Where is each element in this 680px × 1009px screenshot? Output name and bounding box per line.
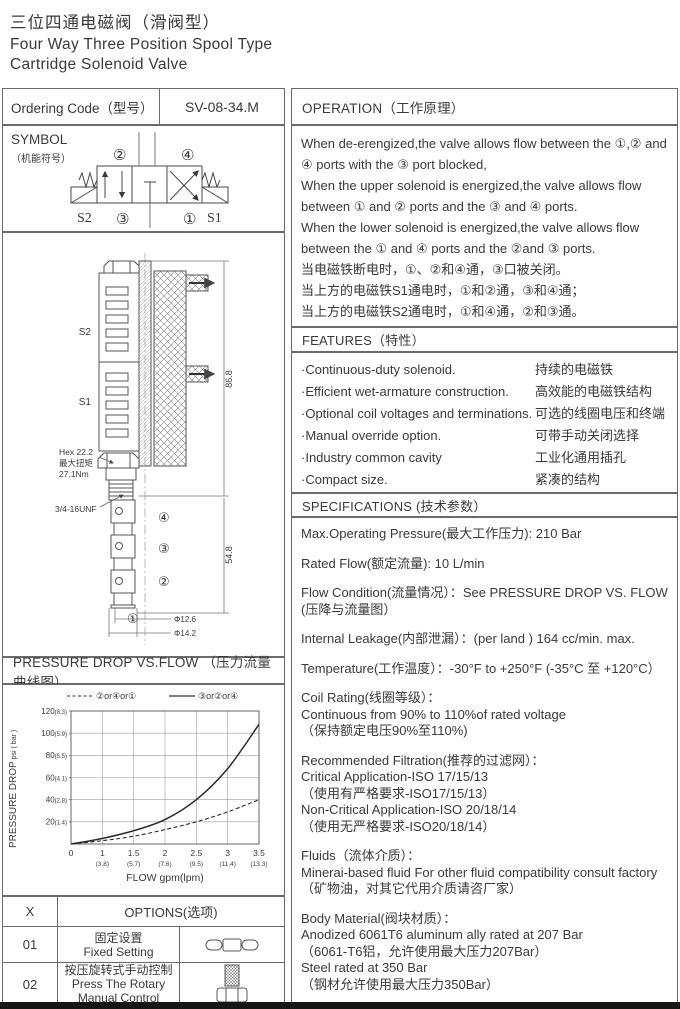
pressure-drop-chart-section: 20(1.4)40(2.8)60(4.1)80(5.5)100(5.9)120(… [2,684,285,896]
operation-line: When de-erengized,the valve allows flow … [301,133,669,175]
symbol-section: SYMBOL （机能符号） [2,125,285,232]
valve-symbol-schematic: ② ④ ③ ① S2 S1 [3,126,284,231]
coil-s1-label: S1 [79,397,92,408]
option-02-label-zh: 按压旋转式手动控制 [64,963,172,977]
svg-text:20(1.4): 20(1.4) [46,818,67,827]
svg-text:1.5: 1.5 [128,848,140,858]
spec-line: Recommended Filtration(推荐的过滤网）： [301,753,669,770]
datasheet-page: 三位四通电磁阀（滑阀型） Four Way Three Position Spo… [0,0,680,1009]
feature-en: ·Compact size. [301,469,535,491]
spec-line: （6061-T6铝，允许使用最大压力207Bar） [301,944,669,961]
svg-text:3: 3 [225,848,230,858]
symbol-port-3: ③ [116,211,129,228]
dia-14-2: Φ14.2 [174,629,197,638]
feature-row: ·Manual override option.可带手动关闭选择 [301,425,671,447]
options-table: X OPTIONS(选项) 01 固定设置 Fixed Setting 02 按… [2,896,285,1003]
feature-row: ·Efficient wet-armature construction.高效能… [301,381,671,403]
spec-line: Fluids（流体介质）： [301,848,669,865]
features-heading: FEATURES（特性） [291,327,678,352]
spec-line: Critical Application-ISO 17/15/13 [301,769,669,786]
option-02-code: 02 [3,963,58,1005]
spec-block: Fluids（流体介质）：Minerai-based fluid For oth… [301,848,669,898]
spec-line: Internal Leakage(内部泄漏）：(per land ) 164 c… [301,631,669,648]
feature-en: ·Efficient wet-armature construction. [301,381,535,403]
svg-text:60(4.1): 60(4.1) [46,773,67,782]
chart-legend: ②or④or①③or②or④ [67,691,238,701]
feature-zh: 工业化通用插孔 [535,447,671,469]
spec-line: Body Material(阀块材质）： [301,911,669,928]
chart-x-label: FLOW gpm(lpm) [126,872,204,884]
symbol-port-1: ① [183,211,196,228]
spec-line: (压降与流量图） [301,602,669,619]
svg-text:(9.5): (9.5) [190,861,203,868]
svg-text:2: 2 [163,848,168,858]
symbol-port-4: ④ [181,147,194,164]
spec-line: Anodized 6061T6 aluminum ally rated at 2… [301,927,669,944]
feature-en: ·Industry common cavity [301,447,535,469]
drawing-port-2: ② [158,574,170,589]
feature-zh: 持续的电磁铁 [535,359,671,381]
spec-line: Continuous from 90% to 110%of rated volt… [301,707,669,724]
svg-text:80(5.5): 80(5.5) [46,751,67,760]
title-block: 三位四通电磁阀（滑阀型） Four Way Three Position Spo… [10,12,272,75]
svg-text:(11.4): (11.4) [219,861,236,868]
svg-text:(13.3): (13.3) [251,861,268,868]
feature-zh: 紧凑的结构 [535,469,671,491]
spec-block: Rated Flow(额定流量): 10 L/min [301,556,669,573]
features-list: ·Continuous-duty solenoid.持续的电磁铁·Efficie… [291,352,678,493]
specifications-text: Max.Operating Pressure(最大工作压力): 210 BarR… [291,517,678,1003]
svg-text:②or④or①: ②or④or① [96,691,136,701]
options-col-options-header: OPTIONS(选项) [58,897,284,927]
chart-y-axis: 20(1.4)40(2.8)60(4.1)80(5.5)100(5.9)120(… [41,707,71,827]
operation-line: 当上方的电磁铁S1通电时，①和②通，③和④通； [301,280,669,301]
drawing-port-3: ③ [158,541,170,556]
spec-block: Recommended Filtration(推荐的过滤网）：Critical … [301,753,669,836]
page-title-zh: 三位四通电磁阀（滑阀型） [10,12,272,35]
option-01-code: 01 [3,927,58,963]
thread-label: 3/4-16UNF [55,504,97,514]
knurled-knob-icon [213,964,251,1004]
options-col-x-header: X [3,897,58,927]
page-bottom-rule [0,1002,680,1009]
feature-row: ·Continuous-duty solenoid.持续的电磁铁 [301,359,671,381]
option-01-label-zh: 固定设置 [94,931,142,945]
feature-en: ·Continuous-duty solenoid. [301,359,535,381]
spec-line: （矿物油，对其它代用介质请咨厂家） [301,881,669,898]
feature-zh: 可选的线圈电压和终端 [535,403,671,425]
spec-block: Coil Rating(线圈等级）：Continuous from 90% to… [301,690,669,740]
dim-54-8: 54.8 [224,546,234,564]
feature-en: ·Optional coil voltages and terminations… [301,403,535,425]
ordering-code-label: Ordering Code（型号） [2,88,160,125]
coil-s2-label: S2 [79,327,92,338]
spec-line: Coil Rating(线圈等级）： [301,690,669,707]
spec-line: （使用无严格要求-ISO20/18/14） [301,819,669,836]
dia-12-6: Φ12.6 [174,615,197,624]
chart-grid [71,711,259,844]
spec-line: （使用有严格要求-ISO17/15/13） [301,786,669,803]
svg-text:40(2.8): 40(2.8) [46,795,67,804]
svg-text:(3.8): (3.8) [96,861,109,868]
torque-value-label: 27.1Nm [59,469,89,479]
feature-zh: 高效能的电磁铁结构 [535,381,671,403]
svg-text:(7.6): (7.6) [158,861,171,868]
spec-line: （钢材允许使用最大压力350Bar） [301,977,669,994]
drawing-port-4: ④ [158,510,170,525]
spec-block: Body Material(阀块材质）：Anodized 6061T6 alum… [301,911,669,994]
feature-en: ·Manual override option. [301,425,535,447]
chart-y-label: PRESSURE DROP psi ( bar ) [8,730,19,848]
page-title-en-1: Four Way Three Position Spool Type [10,35,272,55]
triple-nut-icon [205,937,259,953]
ordering-code-value: SV-08-34.M [159,88,285,125]
spec-line: Max.Operating Pressure(最大工作压力): 210 Bar [301,526,669,543]
symbol-port-2: ② [113,147,126,164]
pressure-drop-chart: 20(1.4)40(2.8)60(4.1)80(5.5)100(5.9)120(… [3,685,284,895]
svg-text:2.5: 2.5 [190,848,202,858]
spec-block: Max.Operating Pressure(最大工作压力): 210 Bar [301,526,669,543]
feature-zh: 可带手动关闭选择 [535,425,671,447]
symbol-solenoid-s2: S2 [77,211,92,226]
operation-line: When the lower solenoid is energized,the… [301,217,669,259]
hex-size-label: Hex 22.2 [59,447,93,457]
option-01-label: 固定设置 Fixed Setting [58,927,180,963]
pressure-drop-heading: PRESSURE DROP VS.FLOW （压力流量曲线图） [2,657,285,684]
spec-line: Steel rated at 350 Bar [301,960,669,977]
spec-line: Non-Critical Application-ISO 20/18/14 [301,802,669,819]
operation-line: 当电磁铁断电时，①、②和④通，③口被关闭。 [301,259,669,280]
option-01-label-en: Fixed Setting [83,945,153,959]
option-01-icon-cell [180,927,284,963]
spec-block: Internal Leakage(内部泄漏）：(per land ) 164 c… [301,631,669,648]
spec-line: Flow Condition(流量情况）：See PRESSURE DROP V… [301,585,669,602]
svg-text:③or②or④: ③or②or④ [198,691,238,701]
option-02-label: 按压旋转式手动控制 Press The Rotary Manual Contro… [58,963,180,1005]
feature-row: ·Industry common cavity工业化通用插孔 [301,447,671,469]
svg-text:0: 0 [69,848,74,858]
operation-heading: OPERATION（工作原理） [291,88,678,125]
dim-86-8: 86.8 [224,370,234,388]
specifications-heading: SPECIFICATIONS (技术参数） [291,493,678,517]
dimension-drawing-section: S2 S1 Hex 22.2 最大扭矩 27.1Nm 3/4-16UNF 86.… [2,232,285,657]
svg-text:1: 1 [100,848,105,858]
spec-block: Temperature(工作温度）：-30°F to +250°F (-35°C… [301,661,669,678]
svg-text:(5.7): (5.7) [127,861,140,868]
chart-x-axis: 01(3.8)1.5(5.7)2(7.6)2.5(9.5)3(11.4)3.5(… [69,848,268,868]
operation-line: 当上方的电磁铁S2通电时，①和④通，②和③通。 [301,301,669,322]
operation-line: When the upper solenoid is energized,the… [301,175,669,217]
operation-text: When de-erengized,the valve allows flow … [291,125,678,327]
spec-line: Minerai-based fluid For other fluid comp… [301,865,669,882]
valve-cross-section-drawing: S2 S1 Hex 22.2 最大扭矩 27.1Nm 3/4-16UNF 86.… [3,233,284,656]
spec-line: Temperature(工作温度）：-30°F to +250°F (-35°C… [301,661,669,678]
symbol-solenoid-s1: S1 [207,211,222,226]
svg-text:3.5: 3.5 [253,848,265,858]
svg-text:120(8.3): 120(8.3) [41,707,67,716]
drawing-port-1: ① [127,611,139,626]
option-02-label-en: Press The Rotary Manual Control [58,977,179,1005]
max-torque-label: 最大扭矩 [59,458,94,468]
spec-line: Rated Flow(额定流量): 10 L/min [301,556,669,573]
spec-block: Flow Condition(流量情况）：See PRESSURE DROP V… [301,585,669,618]
svg-text:100(5.9): 100(5.9) [41,729,67,738]
option-02-icon-cell [180,963,284,1005]
feature-row: ·Optional coil voltages and terminations… [301,403,671,425]
page-title-en-2: Cartridge Solenoid Valve [10,55,272,75]
spec-line: （保持额定电压90%至110%) [301,723,669,740]
feature-row: ·Compact size.紧凑的结构 [301,469,671,491]
